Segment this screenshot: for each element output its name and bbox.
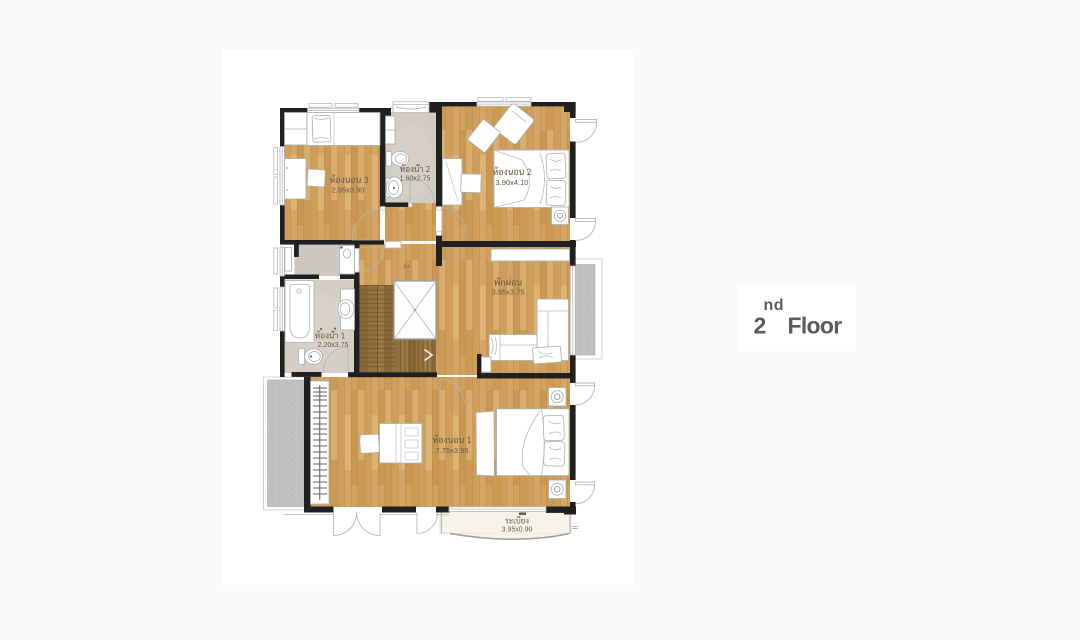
svg-text:3.95x3.75: 3.95x3.75 [492,288,525,297]
svg-text:nd: nd [764,297,785,314]
svg-text:Floor: Floor [788,313,843,339]
svg-text:2.95x3.90: 2.95x3.90 [332,186,365,195]
svg-text:3.90x4.10: 3.90x4.10 [496,178,529,187]
svg-text:2.20x3.75: 2.20x3.75 [318,342,349,349]
svg-text:2: 2 [754,313,767,339]
svg-text:3.95x0.90: 3.95x0.90 [502,527,533,534]
svg-text:7.75x3.95: 7.75x3.95 [436,446,469,455]
svg-text:1.60x2.75: 1.60x2.75 [400,176,431,183]
